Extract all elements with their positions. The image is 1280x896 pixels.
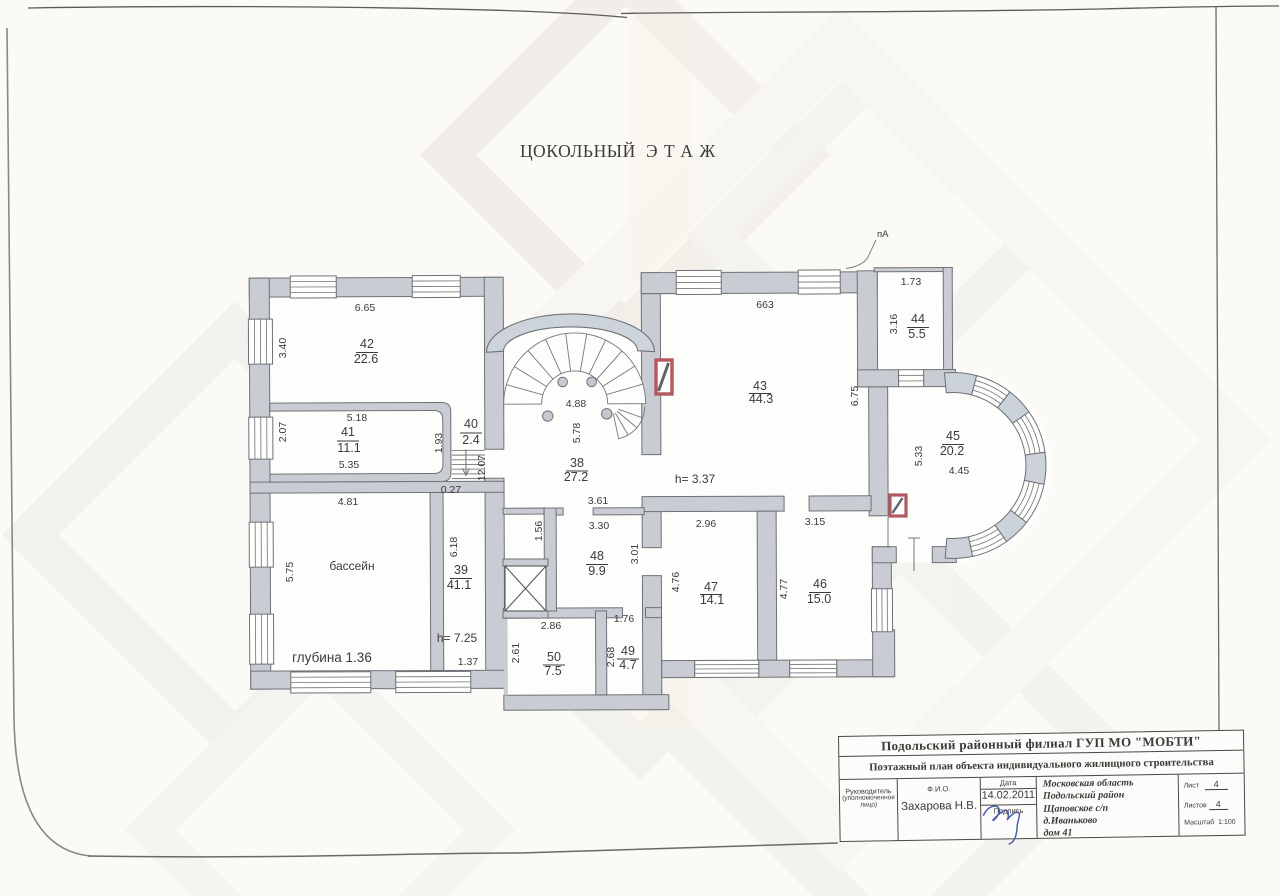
svg-text:41.1: 41.1 <box>447 578 471 592</box>
svg-text:2.4: 2.4 <box>462 433 479 447</box>
svg-text:663: 663 <box>756 299 774 311</box>
svg-text:44: 44 <box>911 312 925 326</box>
svg-text:1.93: 1.93 <box>433 433 445 454</box>
svg-text:44.3: 44.3 <box>749 392 773 406</box>
svg-text:20.2: 20.2 <box>940 444 964 458</box>
svg-text:4.76: 4.76 <box>670 572 682 593</box>
svg-text:ЦОКОЛЬНЫЙ: ЦОКОЛЬНЫЙ <box>520 141 636 161</box>
svg-text:49: 49 <box>621 644 635 658</box>
svg-text:4.88: 4.88 <box>566 398 587 410</box>
svg-text:4.81: 4.81 <box>338 496 359 508</box>
svg-text:h= 3.37: h= 3.37 <box>675 472 716 486</box>
svg-text:6.75: 6.75 <box>849 386 861 407</box>
svg-text:46: 46 <box>813 577 827 591</box>
svg-text:43: 43 <box>753 379 767 393</box>
svg-text:1.76: 1.76 <box>614 613 635 625</box>
svg-text:6.18: 6.18 <box>448 537 460 558</box>
svg-text:42: 42 <box>360 337 374 351</box>
svg-text:1.56: 1.56 <box>533 521 545 542</box>
svg-text:14.1: 14.1 <box>700 593 724 607</box>
svg-text:3.30: 3.30 <box>589 520 610 532</box>
svg-text:27.2: 27.2 <box>564 470 588 484</box>
svg-text:38: 38 <box>570 456 584 470</box>
svg-text:41: 41 <box>341 425 355 439</box>
svg-text:22.6: 22.6 <box>354 352 378 366</box>
svg-text:7.5: 7.5 <box>544 664 561 678</box>
svg-text:3.01: 3.01 <box>629 544 641 565</box>
svg-text:5.75: 5.75 <box>284 562 296 583</box>
svg-text:3.61: 3.61 <box>588 495 609 507</box>
svg-text:3.16: 3.16 <box>888 314 900 335</box>
svg-text:2.61: 2.61 <box>510 643 522 664</box>
svg-text:2.96: 2.96 <box>696 518 717 530</box>
svg-text:пА: пА <box>877 229 889 240</box>
svg-text:39: 39 <box>454 563 468 577</box>
svg-text:глубина 1.36: глубина 1.36 <box>292 650 372 665</box>
svg-text:h= 7.25: h= 7.25 <box>437 631 478 645</box>
svg-text:1.73: 1.73 <box>901 276 922 288</box>
svg-text:ЭТАЖ: ЭТАЖ <box>646 141 722 161</box>
svg-text:5.5: 5.5 <box>908 327 925 341</box>
svg-text:12.07: 12.07 <box>476 455 488 481</box>
svg-text:45: 45 <box>946 429 960 443</box>
svg-text:4.7: 4.7 <box>619 658 636 672</box>
svg-text:5.78: 5.78 <box>571 423 583 444</box>
svg-text:11.1: 11.1 <box>337 441 360 455</box>
svg-text:50: 50 <box>547 650 561 664</box>
svg-text:1.37: 1.37 <box>458 656 479 668</box>
svg-text:3.15: 3.15 <box>805 516 826 528</box>
svg-text:40: 40 <box>464 417 478 431</box>
svg-text:4.77: 4.77 <box>778 579 790 600</box>
svg-text:5.18: 5.18 <box>347 412 368 424</box>
svg-text:2.68: 2.68 <box>605 647 617 668</box>
svg-text:48: 48 <box>590 549 604 563</box>
svg-text:5.33: 5.33 <box>913 446 925 467</box>
svg-text:15.0: 15.0 <box>807 592 831 606</box>
svg-text:5.35: 5.35 <box>339 459 360 471</box>
svg-text:2.07: 2.07 <box>277 422 289 443</box>
svg-text:0.27: 0.27 <box>441 484 462 496</box>
svg-text:9.9: 9.9 <box>588 564 605 578</box>
svg-text:47: 47 <box>704 580 718 594</box>
svg-text:4.45: 4.45 <box>949 465 970 477</box>
svg-text:6.65: 6.65 <box>355 302 376 314</box>
svg-text:3.40: 3.40 <box>277 338 289 359</box>
svg-text:2.86: 2.86 <box>541 620 562 632</box>
svg-text:бассейн: бассейн <box>329 559 374 573</box>
